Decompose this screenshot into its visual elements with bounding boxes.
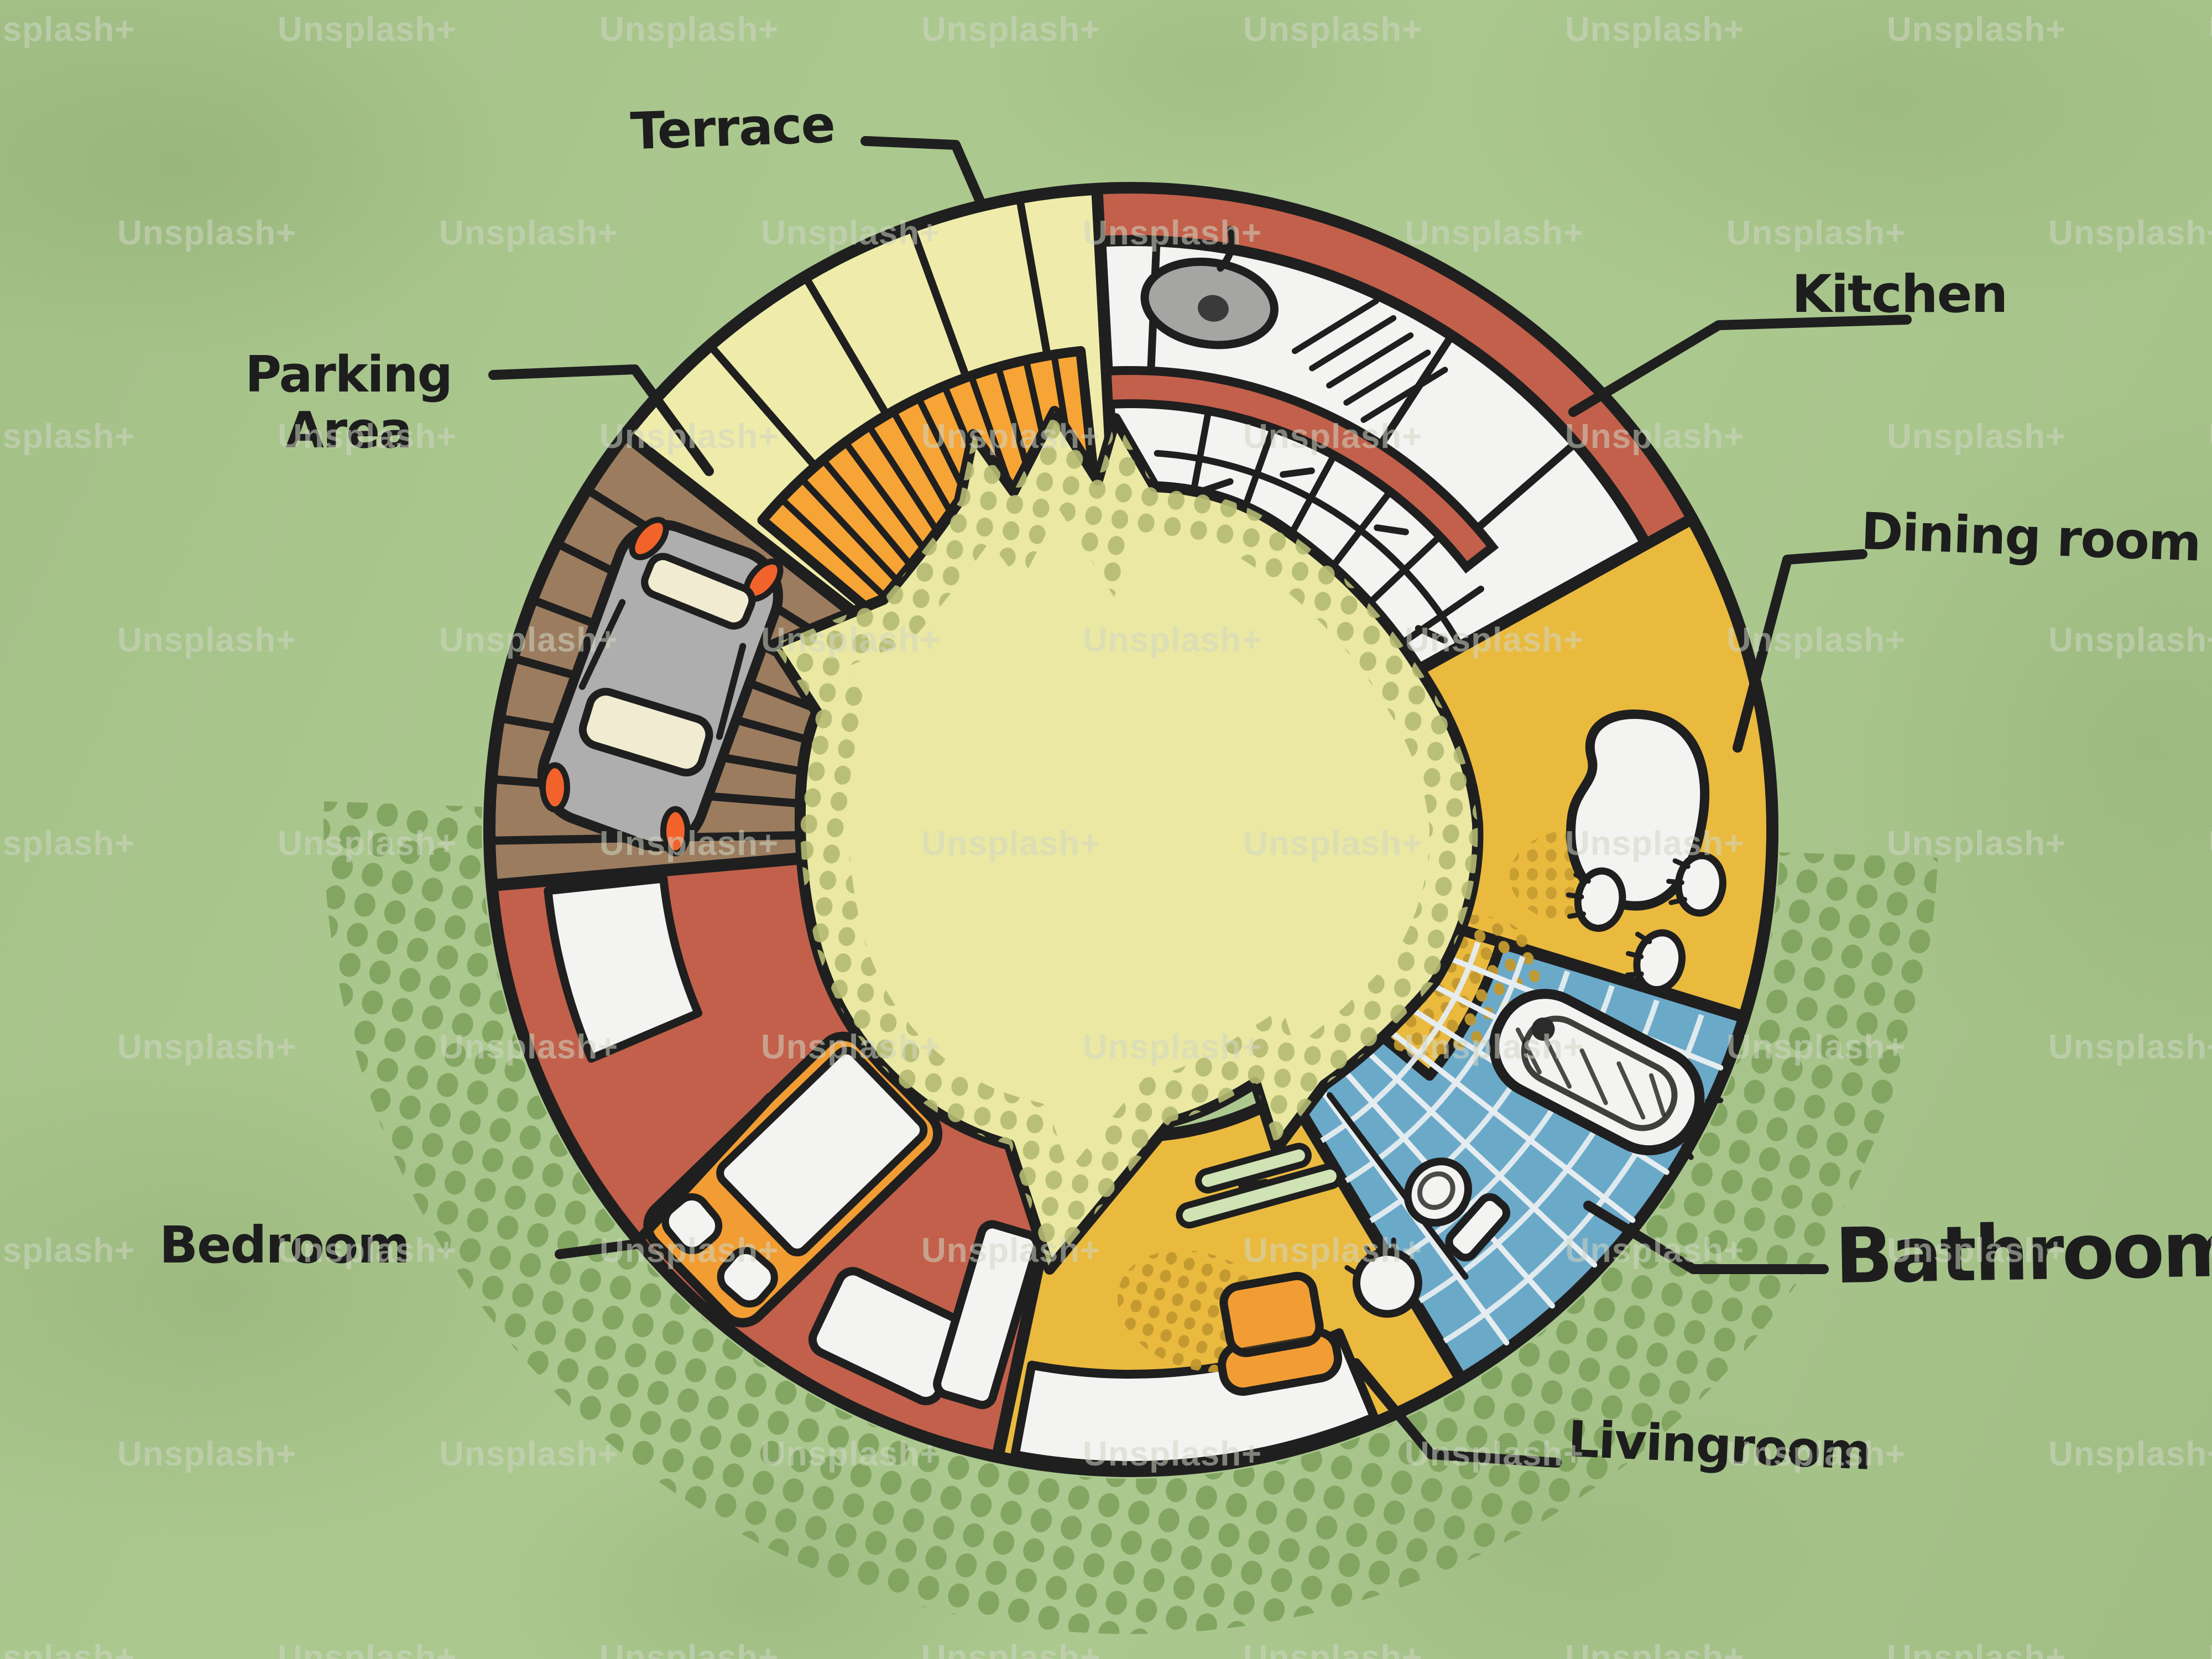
leader-kitchen (1573, 320, 1907, 412)
car-light (663, 809, 687, 853)
illustration-stage: Terrace Kitchen Dining room Bathroom Liv… (0, 0, 2212, 1659)
label-bedroom: Bedroom (159, 1215, 409, 1275)
car-light (542, 765, 567, 810)
leader-terrace (865, 141, 982, 205)
label-terrace: Terrace (629, 95, 835, 161)
label-bathroom: Bathroom (1834, 1205, 2212, 1301)
label-parking: Parking Area (221, 347, 476, 459)
floor-plan-svg (0, 0, 2212, 1659)
label-kitchen: Kitchen (1792, 264, 2007, 325)
label-dining: Dining room (1860, 502, 2201, 572)
